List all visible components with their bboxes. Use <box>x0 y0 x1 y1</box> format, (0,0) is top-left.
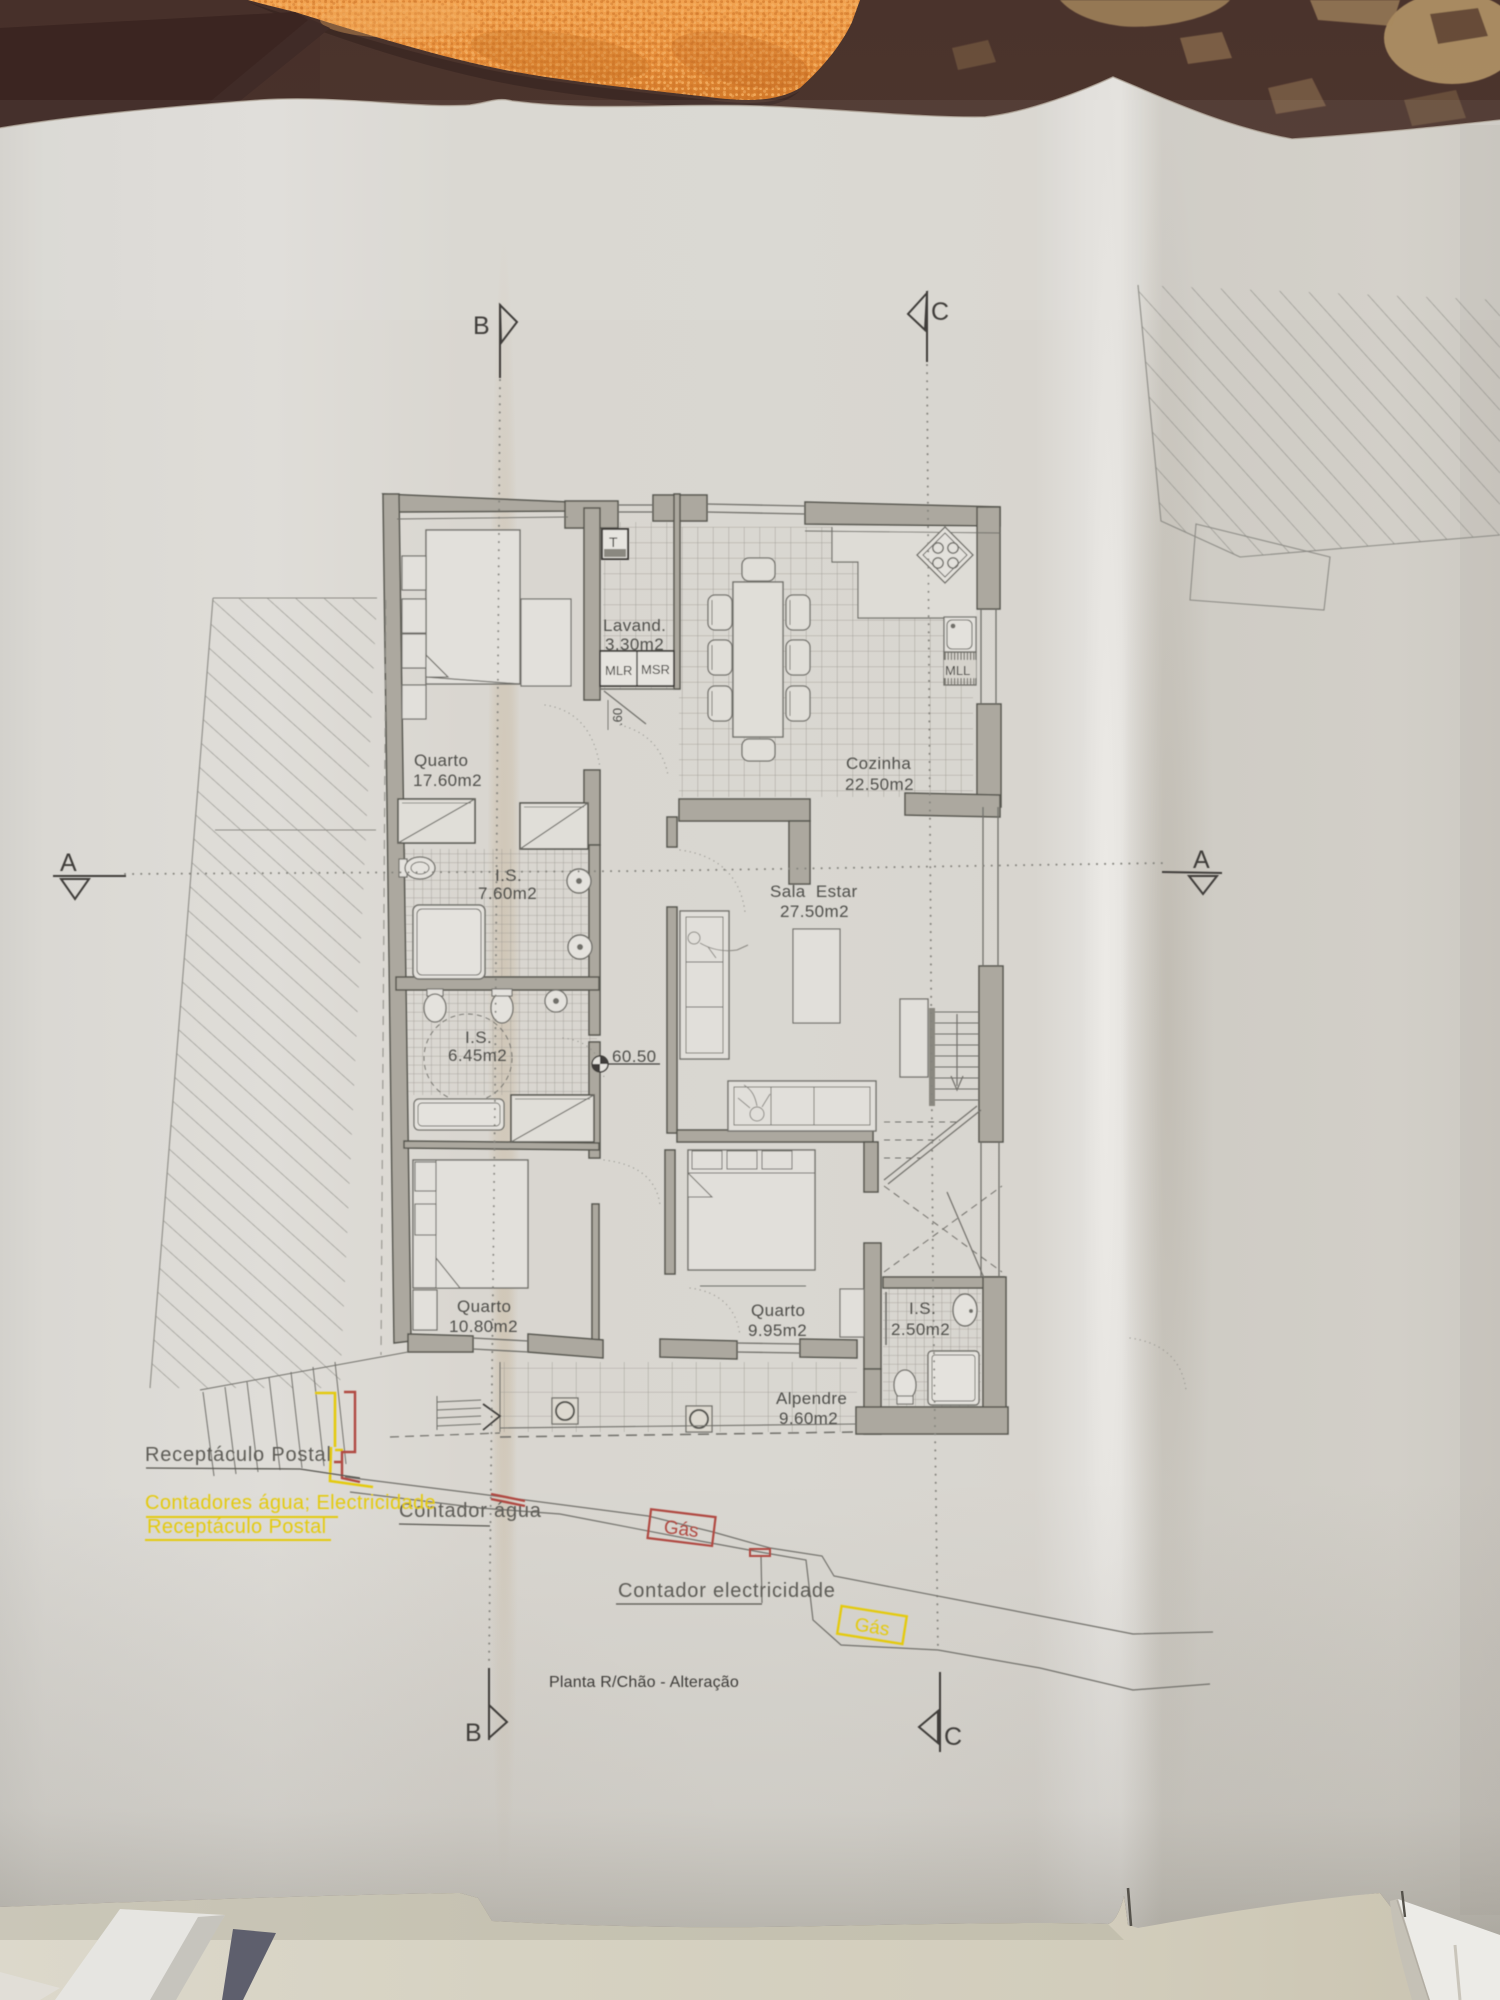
svg-text:C: C <box>944 1723 962 1751</box>
svg-text:I.S.: I.S. <box>465 1028 492 1047</box>
svg-text:Cozinha: Cozinha <box>846 754 911 773</box>
svg-text:C: C <box>931 298 949 326</box>
svg-text:9.60m2: 9.60m2 <box>779 1409 838 1428</box>
svg-text:22.50m2: 22.50m2 <box>845 775 914 794</box>
svg-text:27.50m2: 27.50m2 <box>780 902 849 921</box>
svg-text:A: A <box>1193 846 1210 874</box>
svg-text:60.50: 60.50 <box>612 1047 657 1066</box>
svg-text:Contadores água; Electricidade: Contadores água; Electricidade <box>145 1492 436 1514</box>
svg-text:A: A <box>60 849 77 877</box>
svg-text:Lavand.: Lavand. <box>603 616 666 635</box>
svg-text:3.30m2: 3.30m2 <box>605 635 664 654</box>
svg-text:T: T <box>609 534 618 550</box>
svg-text:9.95m2: 9.95m2 <box>748 1321 807 1340</box>
svg-text:B: B <box>465 1719 482 1747</box>
svg-text:Alpendre: Alpendre <box>776 1389 847 1408</box>
svg-text:I.S.: I.S. <box>909 1299 936 1318</box>
svg-text:10.80m2: 10.80m2 <box>449 1317 518 1336</box>
svg-text:Quarto: Quarto <box>457 1297 511 1316</box>
svg-text:MSR: MSR <box>641 662 670 677</box>
svg-text:MLL: MLL <box>945 663 970 678</box>
svg-text:17.60m2: 17.60m2 <box>413 771 482 790</box>
svg-text:Planta R/Chão - Alteração: Planta R/Chão - Alteração <box>549 1674 739 1691</box>
svg-text:B: B <box>473 312 490 340</box>
svg-text:Contador electricidade: Contador electricidade <box>618 1580 836 1602</box>
svg-text:Quarto: Quarto <box>414 751 468 770</box>
svg-text:MLR: MLR <box>605 663 632 678</box>
svg-text:Sala Estar: Sala Estar <box>770 882 858 901</box>
svg-text:7.60m2: 7.60m2 <box>478 884 537 903</box>
svg-text:.60: .60 <box>610 708 625 726</box>
svg-text:Receptáculo Postal: Receptáculo Postal <box>145 1444 332 1466</box>
svg-text:6.45m2: 6.45m2 <box>448 1046 507 1065</box>
svg-text:Gás: Gás <box>663 1517 700 1542</box>
svg-text:Receptáculo Postal: Receptáculo Postal <box>147 1516 327 1538</box>
svg-text:Quarto: Quarto <box>751 1301 805 1320</box>
svg-text:2.50m2: 2.50m2 <box>891 1320 950 1339</box>
svg-text:I.S.: I.S. <box>495 866 522 885</box>
